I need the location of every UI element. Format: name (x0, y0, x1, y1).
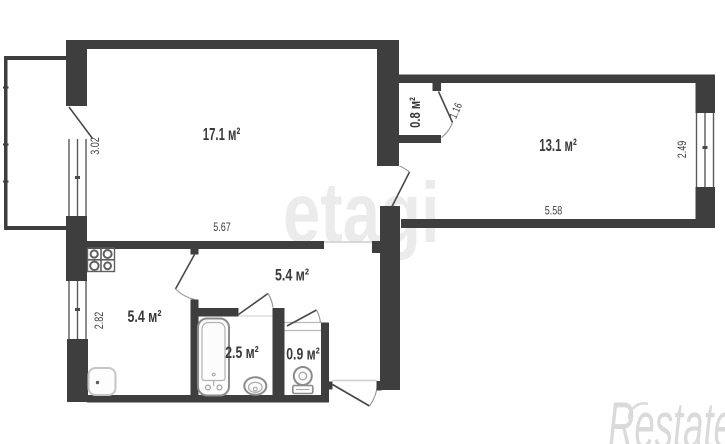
svg-text:3.02: 3.02 (89, 137, 103, 155)
svg-text:2.49: 2.49 (676, 141, 690, 159)
svg-text:5.58: 5.58 (545, 204, 563, 218)
svg-text:13.1 м²: 13.1 м² (539, 137, 577, 156)
svg-text:5.4 м²: 5.4 м² (127, 308, 161, 326)
svg-text:2.82: 2.82 (93, 312, 107, 330)
svg-text:0.9 м²: 0.9 м² (286, 346, 320, 364)
svg-text:5.4 м²: 5.4 м² (275, 267, 309, 285)
svg-text:17.1 м²: 17.1 м² (203, 126, 241, 145)
svg-text:2.5 м²: 2.5 м² (225, 344, 259, 362)
svg-text:0.8 м²: 0.8 м² (406, 97, 423, 128)
svg-text:5.67: 5.67 (213, 221, 231, 235)
svg-text:Restate: Restate (608, 388, 725, 444)
